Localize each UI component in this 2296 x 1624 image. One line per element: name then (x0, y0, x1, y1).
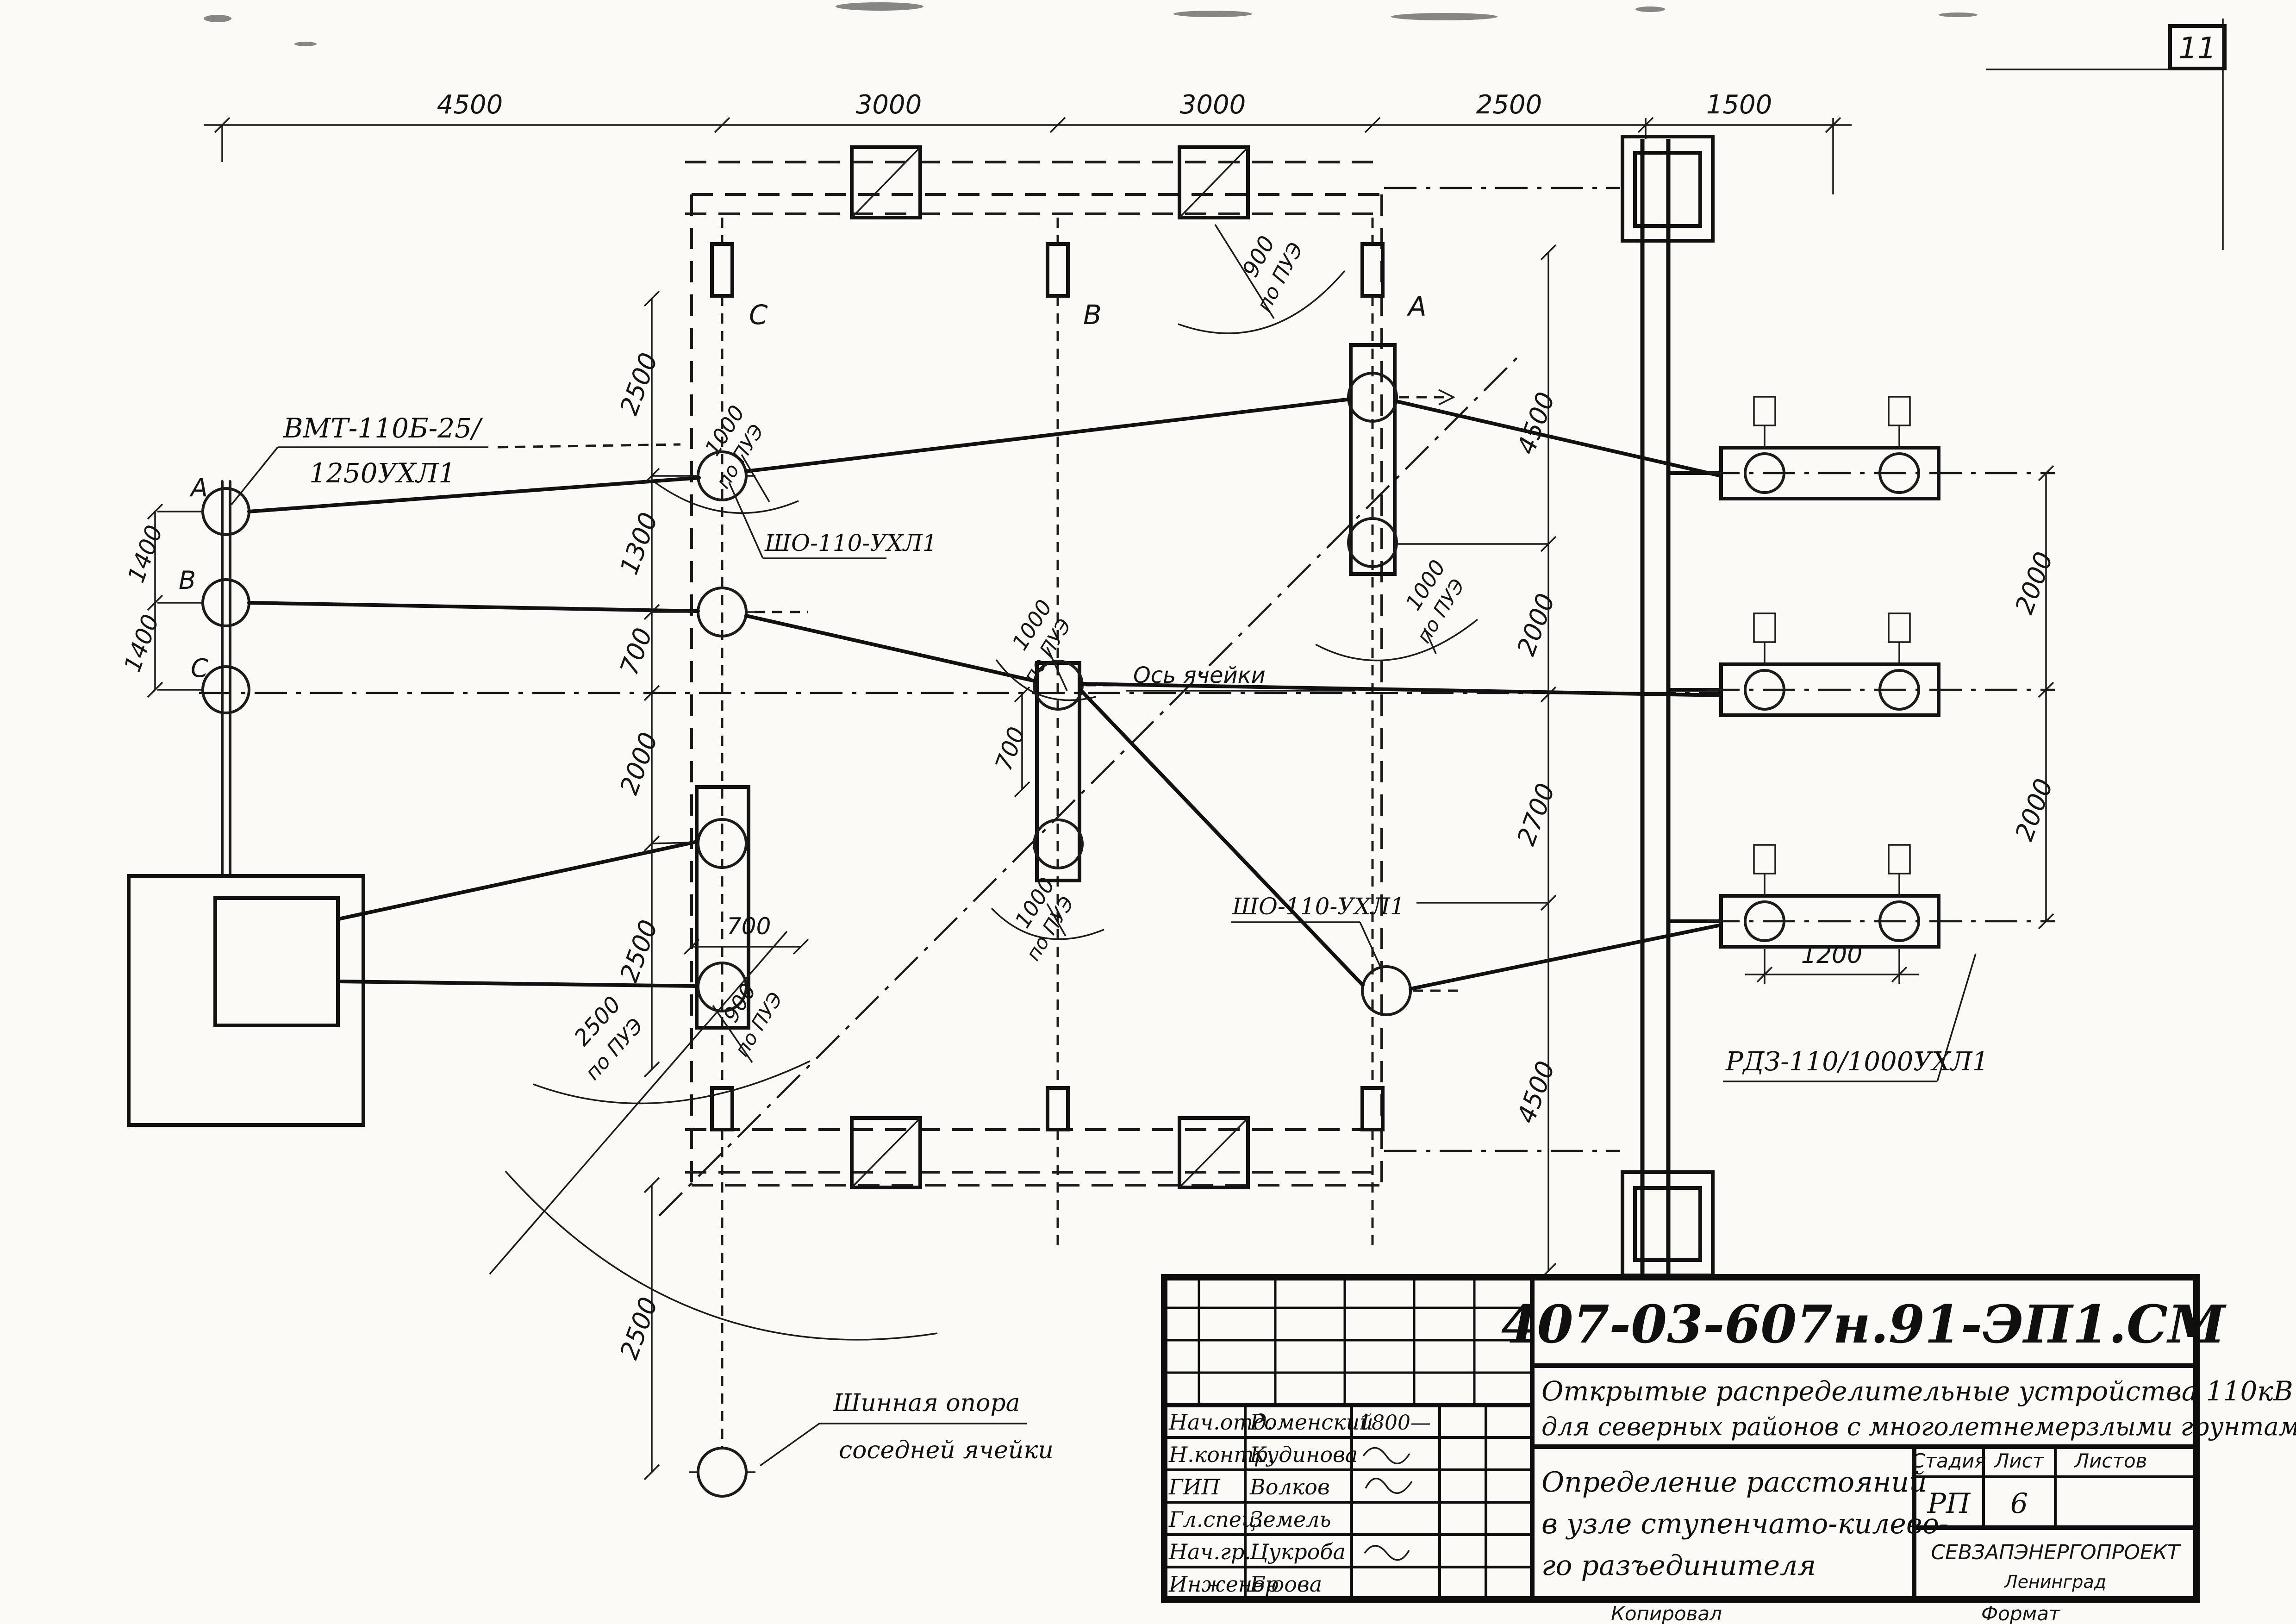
organization-line2: Ленинград (2003, 1572, 2106, 1592)
page-number: 11 (2178, 31, 2216, 66)
scan-artifacts (204, 2, 1978, 46)
dim-mid-4500a: 4500 (1511, 388, 1560, 458)
signature-scribble (1365, 1546, 1409, 1560)
dim-top-3000b: 3000 (1180, 90, 1246, 120)
phase-mark-a: А (189, 473, 208, 502)
dim-mid-4500b: 4500 (1511, 1057, 1560, 1127)
dim-right-2000a: 2000 (2009, 548, 2059, 618)
disconnector-label: РДЗ-110/1000УХЛ1 (1725, 1047, 1989, 1077)
dim-phase-1400a: 1400 (123, 522, 168, 586)
neighbour-bus-support: Шинная опора соседней ячейки (689, 1389, 1054, 1496)
sheet-frame: 11 (1986, 19, 2225, 250)
drawing-name-line3: го разъединителя (1541, 1549, 1816, 1582)
sheet-header: Лист (1994, 1449, 2045, 1472)
dim-left-1300: 1300 (614, 509, 663, 579)
bus-support-bottom-centre: ШО-110-УХЛ1 (1231, 893, 1465, 1015)
footer-format: Формат (1981, 1602, 2061, 1624)
mid-dimension-chain: 4500 2000 2700 4500 (1398, 245, 1560, 1278)
dim-right-2000b: 2000 (2009, 775, 2059, 845)
dim-mid-2700: 2700 (1511, 780, 1560, 849)
project-title-line2: для северных районов с многолетнемерзлым… (1541, 1412, 2296, 1441)
sheets-header: Листов (2074, 1449, 2147, 1472)
neighbour-support-line2: соседней ячейки (839, 1437, 1054, 1464)
dim-phase-1400b: 1400 (119, 611, 164, 675)
footer-copy: Копировал (1611, 1602, 1722, 1624)
breaker-model-top: ВМТ-110Б-25/ (283, 412, 483, 444)
personnel-name-0: Роменский (1249, 1410, 1373, 1435)
support-frame-column-a (1348, 345, 1454, 574)
bus-supports-column-c: ШО-110-УХЛ1 (689, 452, 937, 1028)
dim-pole-1200: 1200 (1801, 941, 1862, 969)
dim-700-b: 700 (990, 724, 1030, 775)
personnel-name-4: Цукроба (1249, 1539, 1346, 1564)
dim-top-4500: 4500 (437, 90, 503, 120)
neighbour-support-line1: Шинная опора (833, 1389, 1020, 1417)
top-dimension-chain: 4500 3000 3000 2500 1500 (204, 90, 1852, 194)
personnel-name-2: Волков (1249, 1474, 1330, 1499)
busbar-portal (1622, 137, 1713, 1275)
organization-line1: СЕВЗАПЭНЕРГОПРОЕКТ (1931, 1541, 2181, 1564)
drawing-name-line1: Определение расстояний (1541, 1466, 1927, 1499)
personnel-name-1: Кудинова (1249, 1442, 1358, 1467)
phase-mark-c: С (191, 654, 208, 683)
dim-left-bottom-2500: 2500 (614, 1293, 663, 1363)
stage-header: Стадия (1911, 1449, 1986, 1472)
dim-left-2000: 2000 (614, 729, 663, 799)
title-block: 407-03-607н.91-ЭП1.СМ Открытые распредел… (1164, 1277, 2296, 1624)
dim-left-2500b: 2500 (614, 916, 663, 986)
breaker-model-bottom: 1250УХЛ1 (309, 457, 455, 489)
signature-scribble (1366, 1479, 1412, 1493)
sheet-value: 6 (2010, 1487, 2028, 1520)
dim-top-3000a: 3000 (856, 90, 922, 120)
column-mark-a: А (1406, 291, 1427, 322)
drawing-name-line2: в узле ступенчато-килево- (1541, 1508, 1948, 1540)
bus-support-label-1: ШО-110-УХЛ1 (764, 530, 937, 556)
phase-mark-b: В (179, 566, 196, 595)
project-title-line1: Открытые распределительные устройства 11… (1541, 1375, 2293, 1407)
personnel-note-0: 1800— (1359, 1411, 1431, 1435)
personnel-name-5: Бюова (1249, 1572, 1322, 1597)
dim-mid-2000: 2000 (1511, 590, 1560, 660)
dim-700-a: 700 (727, 913, 771, 940)
signature-scribble (1363, 1448, 1410, 1464)
bus-support-label-2: ШО-110-УХЛ1 (1232, 893, 1405, 920)
column-mark-b: В (1083, 299, 1102, 331)
personnel-role-2: ГИП (1168, 1474, 1221, 1499)
dim-top-1500: 1500 (1706, 90, 1772, 120)
drawing-sheet: 11 4500 3000 3000 2500 1500 (0, 0, 2296, 1624)
personnel-name-3: Земель (1250, 1507, 1331, 1532)
stage-value: РП (1927, 1487, 1971, 1520)
personnel-role-4: Нач.гр. (1168, 1539, 1251, 1564)
personnel-role-3: Гл.спец. (1168, 1507, 1263, 1532)
column-mark-c: С (749, 299, 768, 331)
doc-number: 407-03-607н.91-ЭП1.СМ (1501, 1294, 2227, 1355)
dim-left-2500a: 2500 (614, 349, 663, 419)
disconnectors-rdz: 2000 2000 1200 РДЗ-110/1000УХЛ1 (1668, 397, 2059, 1081)
dim-top-2500: 2500 (1476, 90, 1542, 120)
